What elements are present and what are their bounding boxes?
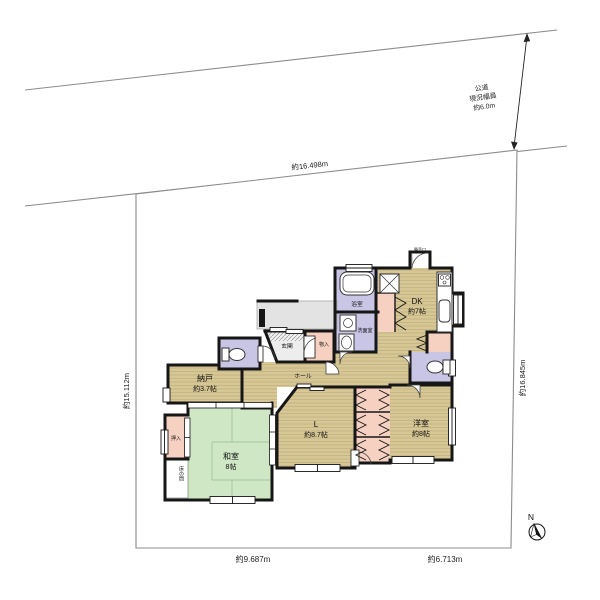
- label-oshiire: 押入: [171, 435, 181, 442]
- label-nando-size: 約3.7帖: [193, 384, 217, 393]
- label-dk-name: DK: [411, 297, 423, 306]
- label-storage-small: 物入: [319, 341, 329, 348]
- north-arrow: N: [528, 512, 545, 540]
- closet-2: [427, 332, 452, 352]
- floor-nando: [168, 365, 242, 403]
- label-living-name: L: [314, 420, 319, 429]
- dimension-top: 約16.498m: [291, 158, 329, 172]
- dimension-bottom-right: 約6.713m: [428, 554, 463, 564]
- floor-plan-page: 公道 現況幅員 約6.0m 約16.498m 約15.112m 約16.845m…: [0, 0, 600, 600]
- dimension-left: 約15.112m: [121, 373, 131, 409]
- road-label-line1: 公道: [474, 82, 489, 93]
- label-washroom: 洗面室: [357, 327, 372, 334]
- label-japanese-room-name: 和室: [223, 451, 239, 461]
- label-nando-name: 納戸: [197, 373, 213, 383]
- label-living-size: 約8.7帖: [304, 430, 328, 439]
- label-tokonoma: 床の間: [171, 466, 183, 496]
- north-label: N: [528, 512, 534, 522]
- dimension-bottom-left: 約9.687m: [236, 554, 271, 564]
- label-back-door: 勝手口: [414, 246, 426, 252]
- dimension-right: 約16.845m: [517, 360, 527, 397]
- toilet-2: [427, 360, 450, 374]
- road-label-line2: 現況幅員: [469, 91, 497, 104]
- label-japanese-room-size: 8帖: [226, 462, 237, 471]
- road-label: 公道 現況幅員 約6.0m: [467, 81, 498, 113]
- porch: [257, 301, 337, 329]
- road-width-arrow: [511, 33, 530, 150]
- porch-pillar: [259, 309, 265, 327]
- label-dk-size: 約7帖: [408, 307, 426, 316]
- label-western-room-size: 約8帖: [412, 429, 430, 438]
- site-plan-svg: 公道 現況幅員 約6.0m 約16.498m 約15.112m 約16.845m…: [0, 0, 600, 600]
- label-bathroom: 浴室: [351, 300, 363, 308]
- label-entrance: 玄関: [281, 342, 293, 350]
- toilet-1: [222, 348, 245, 361]
- label-western-room-name: 洋室: [413, 418, 429, 428]
- closet-band: [355, 387, 390, 463]
- label-hall: ホール: [294, 373, 312, 380]
- kitchen-sink: [439, 300, 450, 322]
